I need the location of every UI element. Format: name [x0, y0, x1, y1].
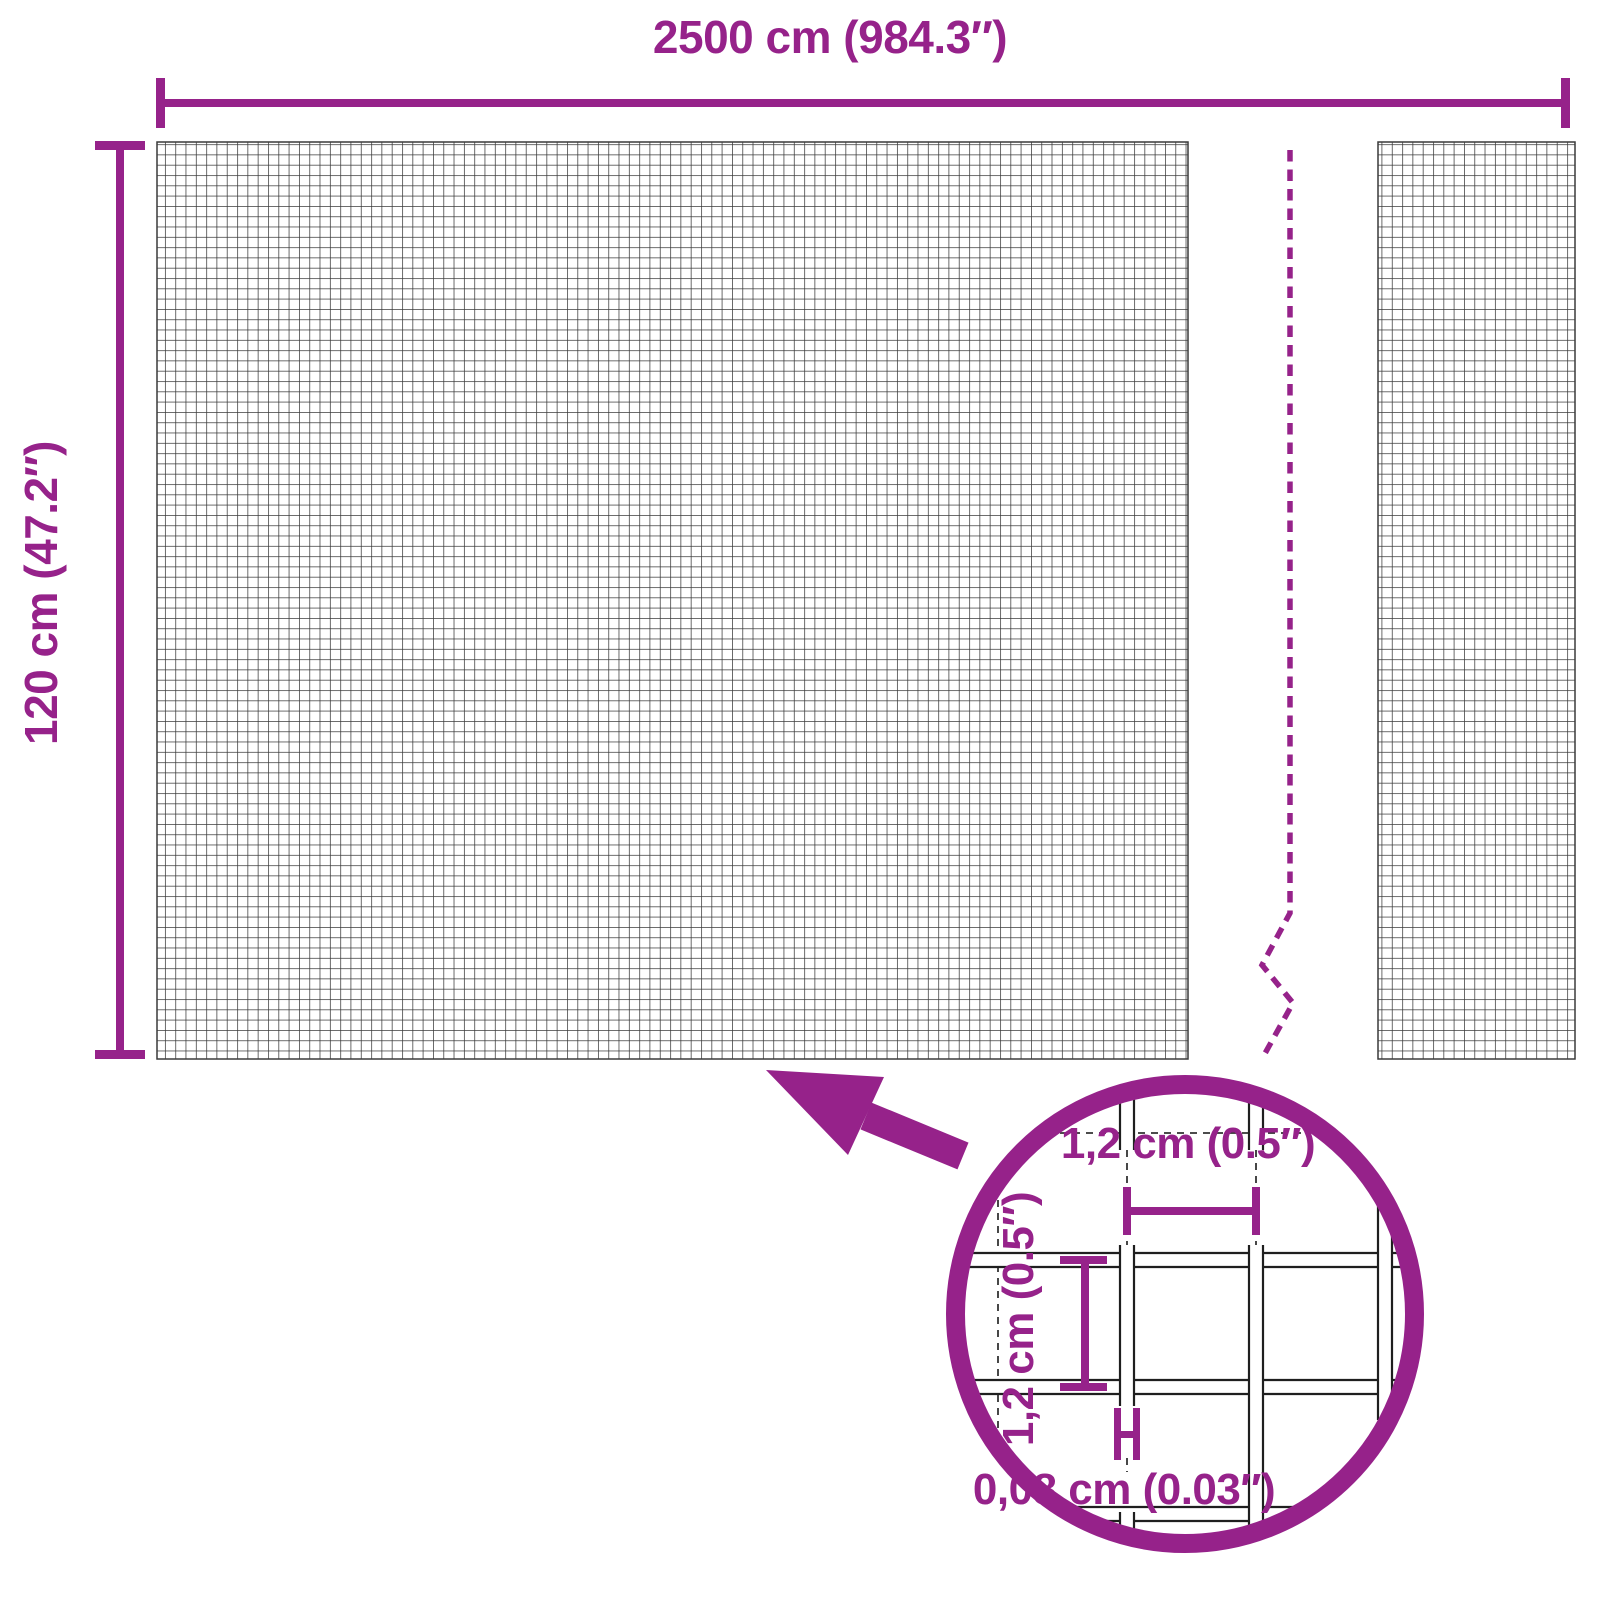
height-dimension-tick-top [95, 141, 145, 150]
diagram-canvas: 2500 cm (984.3″) 120 cm (47.2″) 1,2 cm (… [0, 0, 1600, 1600]
diagram-graphics [0, 0, 1600, 1600]
detail-cell-height-label: 1,2 cm (0.5″) [994, 1192, 1044, 1446]
break-line [1262, 150, 1293, 1057]
width-dimension-tick-left [156, 78, 165, 128]
detail-wire-thickness-label: 0,08 cm (0.03″) [973, 1465, 1275, 1515]
detail-cell-width-label: 1,2 cm (0.5″) [1061, 1119, 1315, 1169]
height-dimension-label: 120 cm (47.2″) [14, 441, 68, 745]
zoom-arrow-icon [766, 1070, 963, 1156]
height-dimension-line [95, 141, 145, 1059]
mesh-panel-right [1378, 142, 1575, 1059]
width-dimension-label: 2500 cm (984.3″) [653, 10, 1007, 64]
height-dimension-tick-bottom [95, 1050, 145, 1059]
width-dimension-line [156, 78, 1570, 128]
mesh-panel-main [157, 142, 1188, 1059]
width-dimension-tick-right [1561, 78, 1570, 128]
